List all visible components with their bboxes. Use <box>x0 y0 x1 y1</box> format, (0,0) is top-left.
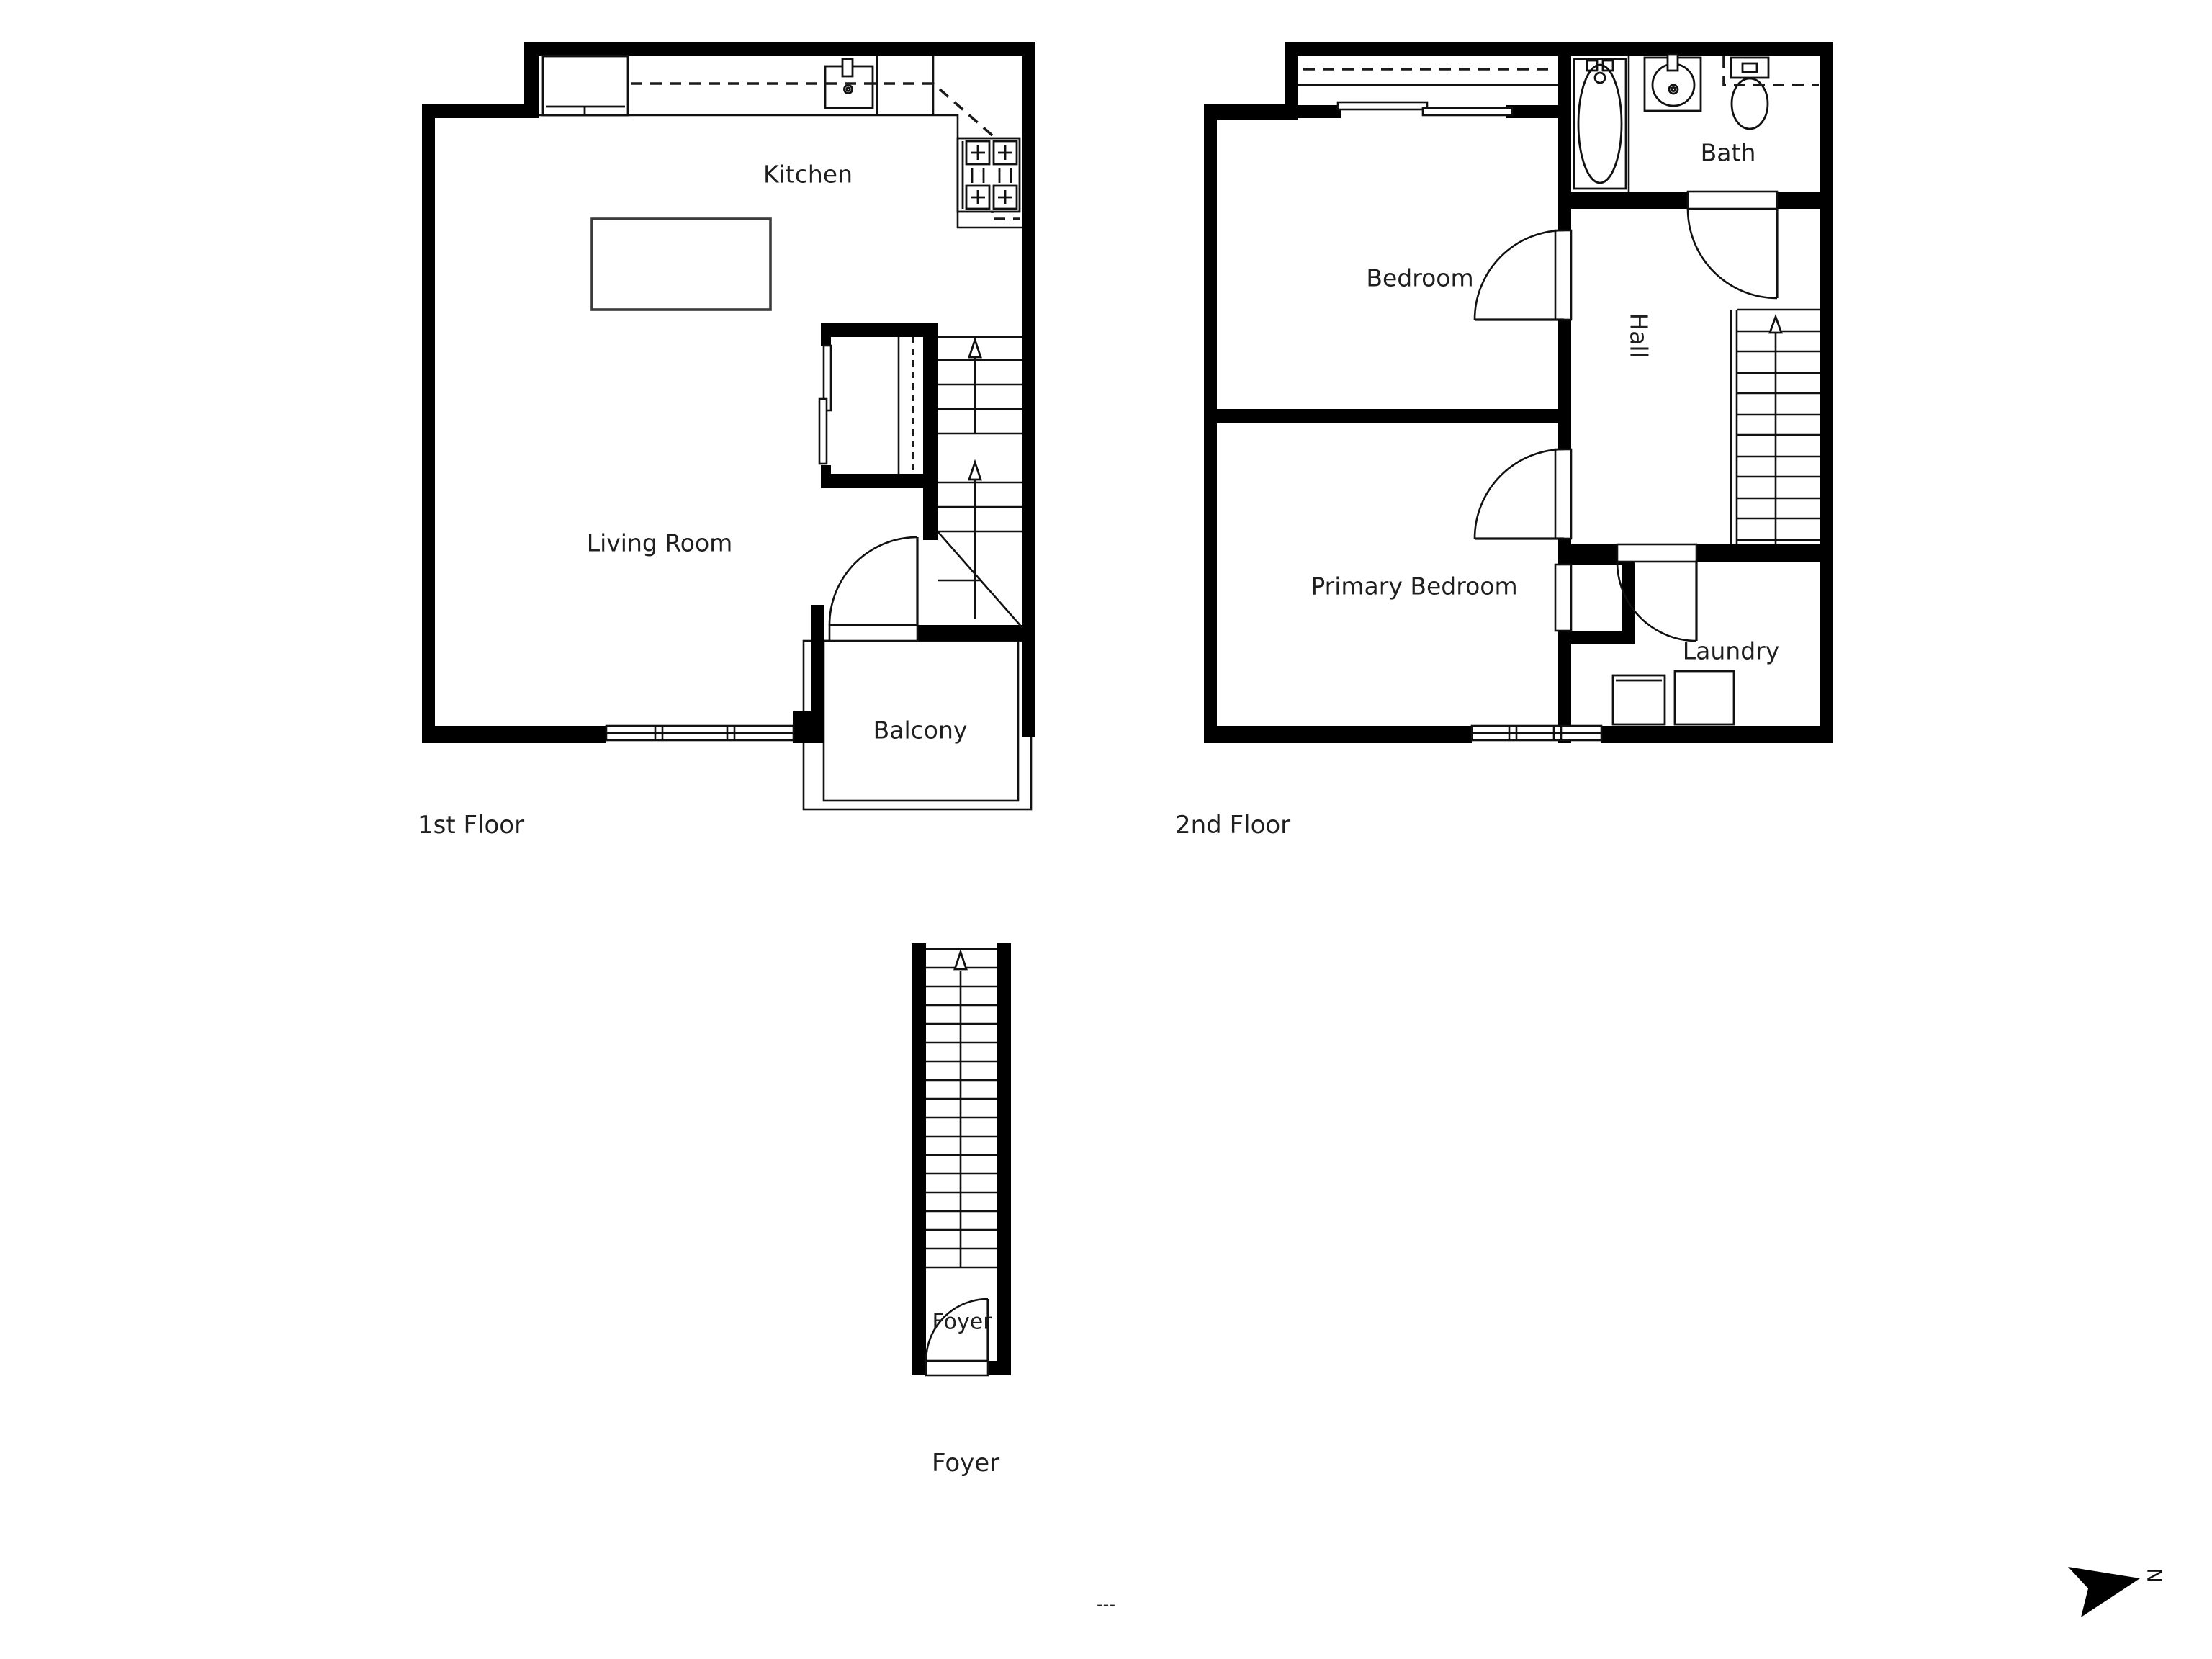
second-floor-stairs <box>1731 310 1820 544</box>
closet-sliding-door-panel <box>1338 102 1427 109</box>
living-room-label: Living Room <box>587 529 733 557</box>
compass: N <box>2068 1567 2167 1617</box>
balcony-door <box>829 537 917 641</box>
foyer-stairs <box>926 949 997 1267</box>
closet-sliding-door-panel <box>1423 108 1512 115</box>
floor-plan-canvas: Kitchen Living Room Balcony 1st Floor <box>0 0 2212 1659</box>
hall-label: Hall <box>1625 313 1653 358</box>
fridge-symbol <box>543 56 628 115</box>
bedroom-door <box>1475 230 1571 320</box>
door-swing-arc <box>1688 209 1777 298</box>
second-floor-caption: 2nd Floor <box>1175 811 1290 840</box>
door-threshold <box>1555 230 1571 320</box>
door-threshold <box>1617 544 1696 562</box>
bath-door <box>1688 192 1777 298</box>
north-arrow-icon <box>2068 1567 2140 1617</box>
first-floor-closet <box>819 337 913 474</box>
bathtub-symbol <box>1574 59 1626 189</box>
stairs-up-arrow-icon <box>969 462 981 480</box>
door-threshold <box>1688 192 1777 209</box>
balcony-label: Balcony <box>873 716 968 745</box>
bath-label: Bath <box>1701 139 1756 167</box>
foyer-room-label: Foyer <box>932 1310 992 1335</box>
primary-bedroom-door <box>1475 449 1571 539</box>
north-label: N <box>2143 1568 2167 1583</box>
first-floor-stairs <box>938 337 1022 628</box>
stairs-up-arrow-icon <box>1770 317 1781 333</box>
first-floor-walls <box>422 42 1035 743</box>
kitchen-label: Kitchen <box>763 161 853 189</box>
first-floor-caption: 1st Floor <box>418 811 524 840</box>
living-room-window <box>606 726 793 740</box>
foyer-caption: Foyer <box>932 1449 999 1478</box>
bedroom-label: Bedroom <box>1366 264 1473 292</box>
laundry-area <box>1613 671 1734 724</box>
stove-symbol <box>958 138 1020 212</box>
first-floor-plan: Kitchen Living Room Balcony 1st Floor <box>418 42 1035 840</box>
toilet-symbol <box>1731 58 1768 129</box>
primary-closet-opening <box>1555 565 1571 631</box>
door-swing-arc <box>1475 449 1564 539</box>
footer-dashes: --- <box>1097 1594 1115 1614</box>
door-threshold <box>926 1361 988 1375</box>
foyer-plan: Foyer Foyer <box>912 943 1011 1478</box>
primary-bedroom-window <box>1472 726 1601 740</box>
bathroom-sink-symbol <box>1645 55 1701 111</box>
kitchen-island <box>592 219 770 310</box>
dishwasher-symbol <box>877 56 933 115</box>
second-floor-plan: Bedroom Bath Hall Primary Bedroom Laundr… <box>1175 42 1833 840</box>
stairs-up-arrow-icon <box>969 340 981 357</box>
door-threshold <box>829 625 917 641</box>
bath-area <box>1574 55 1819 192</box>
door-swing-arc <box>1475 230 1564 320</box>
stairs-up-arrow-icon <box>955 952 966 969</box>
door-threshold <box>1555 449 1571 539</box>
primary-bedroom-label: Primary Bedroom <box>1310 572 1517 601</box>
closet-sliding-door-panel <box>819 399 827 464</box>
dryer-symbol <box>1675 671 1734 724</box>
washer-symbol <box>1613 675 1665 724</box>
door-swing-arc <box>829 537 917 625</box>
upper-cabinet-dashed-line <box>631 84 992 219</box>
laundry-label: Laundry <box>1683 637 1779 665</box>
